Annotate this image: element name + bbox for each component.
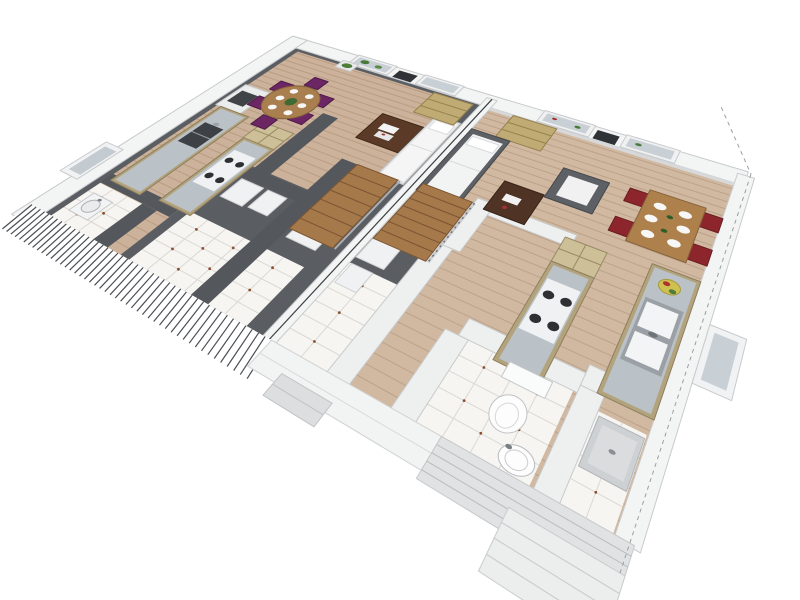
tile-grid-wc-right-dot-2-4 xyxy=(479,432,482,435)
tile-grid-utility-right-dot-1-3 xyxy=(338,311,341,314)
floor-plan-image xyxy=(0,0,800,600)
tile-grid-garage-left-dot-1-3 xyxy=(171,248,174,251)
tile-grid-shower-right-dot-1-3 xyxy=(594,491,597,494)
tile-grid-wc-right-dot-1-1 xyxy=(483,366,486,369)
tile-grid-utility-right-dot-1-5 xyxy=(313,340,316,343)
tile-grid-garage-left-dot-2-2 xyxy=(201,247,204,250)
tile-grid-garage-left-dot-3-1 xyxy=(232,247,235,250)
floor-plan-canvas xyxy=(0,0,800,600)
tile-grid-garage-left-dot-2-4 xyxy=(177,268,180,271)
tile-grid-garage-left-dot-3-3 xyxy=(208,267,211,270)
tile-grid-garage-left-dot-5-3 xyxy=(248,289,251,292)
tile-grid-wc-right-dot-1-3 xyxy=(463,399,466,402)
tile-grid-wc-left-dot-2-2 xyxy=(102,212,105,215)
roof-outline-dash-upper xyxy=(721,107,751,174)
tile-grid-garage-left-dot-5-1 xyxy=(271,266,274,269)
tile-grid-garage-left-dot-1-1 xyxy=(195,228,198,231)
